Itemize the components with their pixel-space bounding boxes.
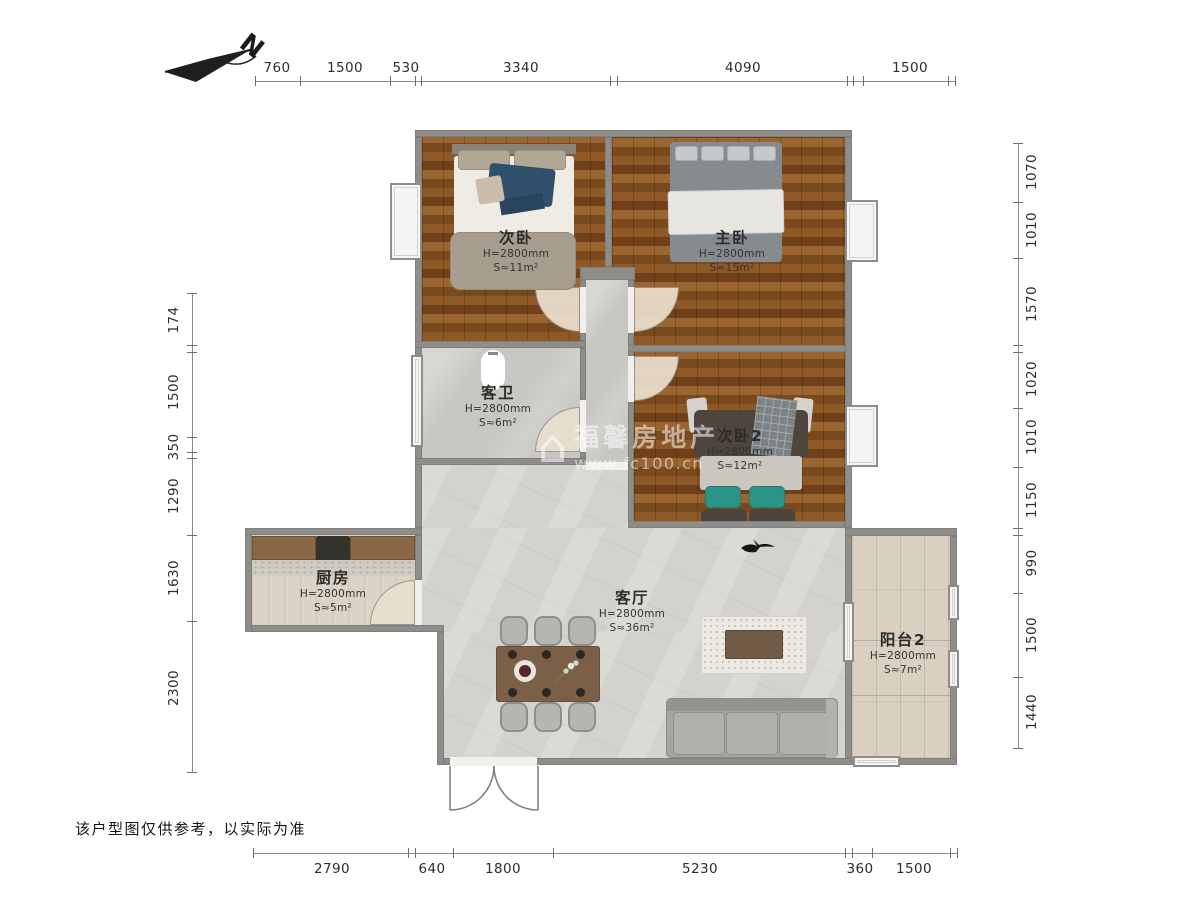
dim-label: 174 xyxy=(166,307,182,334)
dim-tick xyxy=(1013,345,1023,346)
dim-label: 4090 xyxy=(725,60,761,76)
dim-label: 990 xyxy=(1024,550,1040,577)
room-name: 厨房 xyxy=(300,568,366,588)
dim-tick xyxy=(408,848,409,858)
dining-chair xyxy=(500,702,528,732)
doorway-second-bedroom xyxy=(580,287,586,333)
dim-label: 2300 xyxy=(166,670,182,706)
wall-corridor-header xyxy=(580,267,635,280)
dim-label: 350 xyxy=(166,434,182,461)
window-master-bedroom xyxy=(845,200,878,262)
dim-line-top xyxy=(255,81,955,82)
floor-living-1 xyxy=(422,465,628,528)
dim-tick xyxy=(187,621,197,622)
dim-tick xyxy=(187,437,197,438)
dim-line-left xyxy=(192,293,193,772)
dim-tick xyxy=(853,76,854,86)
dim-label: 360 xyxy=(847,861,874,877)
dim-label: 1570 xyxy=(1024,286,1040,322)
wall-kitchen-bottom xyxy=(245,625,444,632)
corridor-threshold xyxy=(586,462,628,470)
dim-label: 1500 xyxy=(892,60,928,76)
room-height: H=2800mm xyxy=(465,403,531,417)
dim-tick xyxy=(610,76,611,86)
small-pillow xyxy=(475,175,505,205)
wall-lower-left xyxy=(437,632,444,765)
dim-label: 1020 xyxy=(1024,361,1040,397)
dim-label: 1150 xyxy=(1024,482,1040,518)
room-area: S≈12m² xyxy=(707,460,773,474)
dim-label: 5230 xyxy=(682,861,718,877)
room-label-second-bedroom-2: 次卧2 H=2800mm S≈12m² xyxy=(707,426,773,473)
dim-tick xyxy=(553,848,554,858)
wall-corridor-right xyxy=(628,280,634,287)
doorway-master-bedroom xyxy=(628,287,634,333)
dim-tick xyxy=(948,76,949,86)
dim-tick xyxy=(957,848,958,858)
dim-tick xyxy=(863,76,864,86)
dim-label: 1440 xyxy=(1024,694,1040,730)
dining-chair xyxy=(534,702,562,732)
dim-label: 1500 xyxy=(1024,617,1040,653)
sofa-back xyxy=(667,699,837,711)
dim-tick xyxy=(1013,352,1023,353)
room-name: 阳台2 xyxy=(870,630,936,650)
dim-tick xyxy=(1013,202,1023,203)
room-height: H=2800mm xyxy=(707,446,773,460)
dim-label: 2790 xyxy=(314,861,350,877)
room-label-master-bedroom: 主卧 H=2800mm S≈15m² xyxy=(699,228,765,275)
dim-tick xyxy=(852,848,853,858)
wall-top xyxy=(415,130,852,137)
dim-tick xyxy=(1013,467,1023,468)
room-label-balcony-2: 阳台2 H=2800mm S≈7m² xyxy=(870,630,936,677)
pillow xyxy=(727,146,750,161)
sofa-cushion xyxy=(779,712,831,755)
floor-corridor xyxy=(586,280,628,462)
plate xyxy=(508,650,517,659)
dim-label: 640 xyxy=(419,861,446,877)
room-area: S≈11m² xyxy=(483,262,549,276)
wall-kitchen-top xyxy=(245,528,422,535)
wall-bathroom-top xyxy=(415,341,586,348)
teal-pillow xyxy=(705,486,741,508)
room-height: H=2800mm xyxy=(483,248,549,262)
dim-tick xyxy=(1013,143,1023,144)
room-label-living-room: 客厅 H=2800mm S≈36m² xyxy=(599,588,665,635)
room-name: 次卧2 xyxy=(707,426,773,446)
wall-corridor-right xyxy=(628,402,634,528)
dim-label: 1630 xyxy=(166,560,182,596)
north-compass-icon: N xyxy=(160,26,265,106)
window-balcony-bottom xyxy=(853,756,900,767)
dim-tick xyxy=(1013,748,1023,749)
dim-tick xyxy=(955,76,956,86)
doorway-second-bedroom-2 xyxy=(628,356,634,402)
wall-corridor-left xyxy=(580,280,586,287)
pillow xyxy=(753,146,776,161)
pillow xyxy=(675,146,698,161)
room-height: H=2800mm xyxy=(599,608,665,622)
balcony-deck-line xyxy=(852,695,950,696)
room-name: 主卧 xyxy=(699,228,765,248)
dim-tick xyxy=(1013,528,1023,529)
dim-tick xyxy=(847,76,848,86)
dim-label: 760 xyxy=(264,60,291,76)
dim-tick xyxy=(845,848,846,858)
dim-label: 1500 xyxy=(166,374,182,410)
dim-tick xyxy=(1013,258,1023,259)
wall-bathroom-right xyxy=(580,348,586,400)
sofa xyxy=(666,698,838,758)
dim-tick xyxy=(415,848,416,858)
kitchen-cabinet-left xyxy=(252,536,316,560)
wall-right xyxy=(845,137,852,528)
room-name: 客厅 xyxy=(599,588,665,608)
wall-kitchen-left xyxy=(245,528,252,632)
dim-tick xyxy=(187,452,197,453)
dim-label: 3340 xyxy=(503,60,539,76)
dim-tick xyxy=(187,535,197,536)
dim-tick xyxy=(187,293,197,294)
dining-chair xyxy=(500,616,528,646)
doorway-kitchen xyxy=(415,580,422,625)
dim-line-right xyxy=(1018,143,1019,748)
coffee-table xyxy=(725,630,783,659)
dim-tick xyxy=(1013,408,1023,409)
wall-balcony-top xyxy=(845,528,957,536)
bird-icon xyxy=(740,538,776,554)
room-area: S≈15m² xyxy=(699,262,765,276)
disclaimer-text: 该户型图仅供参考，以实际为准 xyxy=(75,818,306,839)
floorplan-canvas: N 760 1500 530 3340 4090 1500 2790 640 1… xyxy=(0,0,1200,900)
pillow xyxy=(701,146,724,161)
kitchen-cabinet-right xyxy=(350,536,415,560)
dining-chair xyxy=(568,702,596,732)
dim-tick xyxy=(187,352,197,353)
flower-decor xyxy=(552,658,580,686)
entrance-double-door xyxy=(448,764,540,812)
window-second-bedroom xyxy=(390,183,422,260)
dim-tick xyxy=(187,772,197,773)
plate xyxy=(542,650,551,659)
dim-tick xyxy=(390,76,391,86)
dim-tick xyxy=(421,76,422,86)
wall-bathroom-bottom xyxy=(415,458,586,465)
teal-pillow xyxy=(749,486,785,508)
dining-chair xyxy=(534,616,562,646)
room-name: 次卧 xyxy=(483,228,549,248)
dim-tick xyxy=(950,848,951,858)
doorway-bathroom xyxy=(580,400,586,452)
dim-tick xyxy=(415,76,416,86)
window-second-bedroom-2 xyxy=(845,405,878,467)
room-height: H=2800mm xyxy=(300,588,366,602)
wall-bedroom2-bottom xyxy=(628,521,845,528)
wall-bedroom-divider xyxy=(605,137,612,267)
dining-chair xyxy=(568,616,596,646)
room-area: S≈6m² xyxy=(465,417,531,431)
dim-tick xyxy=(1013,677,1023,678)
window-living-balcony xyxy=(843,602,854,662)
dim-tick xyxy=(617,76,618,86)
berries xyxy=(519,665,531,677)
room-height: H=2800mm xyxy=(699,248,765,262)
dim-tick xyxy=(453,848,454,858)
room-label-kitchen: 厨房 H=2800mm S≈5m² xyxy=(300,568,366,615)
dim-tick xyxy=(1013,593,1023,594)
dim-tick xyxy=(187,458,197,459)
wall-kitchen-right xyxy=(415,535,422,580)
dim-tick xyxy=(187,345,197,346)
room-label-second-bedroom: 次卧 H=2800mm S≈11m² xyxy=(483,228,549,275)
dim-tick xyxy=(300,76,301,86)
room-name: 客卫 xyxy=(465,383,531,403)
dim-label: 1070 xyxy=(1024,154,1040,190)
dim-label: 1010 xyxy=(1024,419,1040,455)
dim-label: 1500 xyxy=(896,861,932,877)
room-height: H=2800mm xyxy=(870,650,936,664)
room-label-bathroom: 客卫 H=2800mm S≈6m² xyxy=(465,383,531,430)
wall-corridor-left xyxy=(580,333,586,341)
sofa-armrest xyxy=(826,699,837,759)
sofa-cushion xyxy=(726,712,778,755)
room-area: S≈36m² xyxy=(599,622,665,636)
plate xyxy=(508,688,517,697)
dim-label: 530 xyxy=(393,60,420,76)
wall-master-bottom xyxy=(628,345,845,352)
plate xyxy=(576,688,585,697)
room-area: S≈5m² xyxy=(300,602,366,616)
dim-tick xyxy=(872,848,873,858)
dim-label: 1290 xyxy=(166,478,182,514)
toilet-tank-mark xyxy=(488,352,498,355)
dim-label: 1500 xyxy=(327,60,363,76)
dim-tick xyxy=(253,848,254,858)
sofa-cushion xyxy=(673,712,725,755)
compass-north-label: N xyxy=(234,28,265,65)
window-bathroom xyxy=(411,355,423,447)
window-balcony-right-2 xyxy=(948,650,959,688)
room-area: S≈7m² xyxy=(870,664,936,678)
plate xyxy=(542,688,551,697)
dim-tick xyxy=(1013,535,1023,536)
window-balcony-right-1 xyxy=(948,585,959,620)
dim-label: 1010 xyxy=(1024,212,1040,248)
dim-label: 1800 xyxy=(485,861,521,877)
